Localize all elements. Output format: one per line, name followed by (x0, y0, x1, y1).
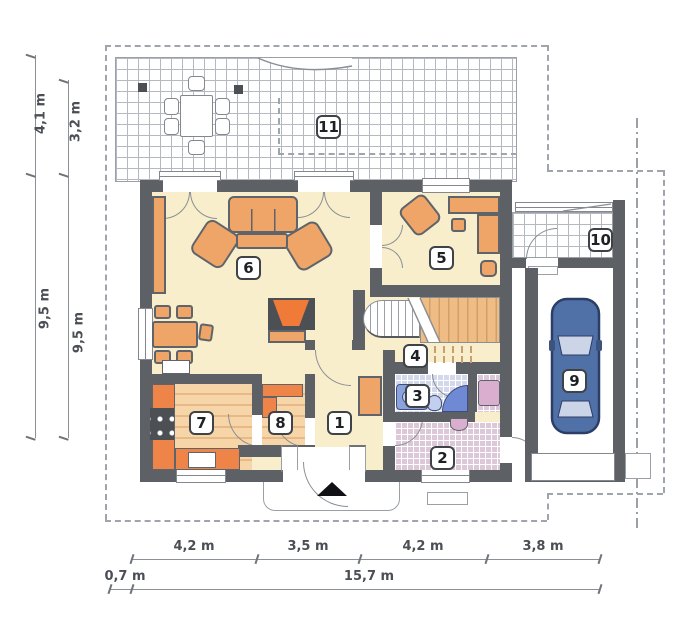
terrace-chair (215, 98, 230, 115)
garage-wall-right (613, 200, 625, 482)
room-number: 8 (275, 414, 285, 432)
study-desk (448, 196, 500, 214)
sofa (228, 196, 298, 233)
sideboard (152, 196, 166, 294)
stairs-upper-dashes (425, 356, 472, 363)
room-label-9: 9 (562, 369, 587, 393)
terrace-chair (188, 76, 205, 91)
room-number: 2 (437, 449, 447, 467)
dim-label: 15,7 m (339, 569, 399, 584)
dim-label: 0,7 m (95, 569, 155, 584)
room-label-2: 2 (430, 446, 455, 470)
room-number: 7 (196, 414, 206, 432)
vestibule-window (421, 468, 470, 483)
vestibule-stoop (427, 492, 468, 505)
wall-study-bottom (370, 285, 512, 297)
stairs-upper-flight (420, 297, 500, 343)
dim-line-bottom-total (110, 589, 600, 590)
kitchen-sink (188, 452, 216, 468)
fireplace-hearth (268, 330, 306, 343)
wall-kitchen-top (152, 374, 262, 384)
entrance-arrow-icon (317, 482, 347, 496)
terrace-chair (215, 118, 230, 135)
garage-rear-edge (515, 202, 613, 212)
study-chair (451, 218, 466, 232)
eaves-outline-left (105, 45, 107, 520)
room-number: 11 (318, 118, 339, 136)
dim-label: 3,8 m (513, 539, 573, 554)
eaves-outline-right-upper (547, 45, 549, 170)
door-opening-vestibule (383, 418, 395, 446)
study-desk (477, 214, 500, 254)
pantry-counter-top (262, 384, 303, 397)
garage-eaves-right (663, 170, 665, 493)
wall-hall-top-a (305, 340, 315, 350)
floor-plan: 11 (0, 0, 700, 619)
dining-window (138, 308, 153, 360)
roof-post (234, 85, 243, 94)
terrace-chair (164, 98, 179, 115)
door-opening-bath (428, 362, 456, 374)
dim-tick (597, 584, 602, 594)
door-opening-terrace-1 (163, 180, 217, 192)
stove (150, 408, 174, 440)
eaves-outline-top (105, 45, 547, 47)
dim-label: 3,2 m (69, 92, 84, 152)
eaves-outline-bottom (105, 520, 547, 522)
study-stool (480, 260, 497, 277)
door-jamb (349, 445, 366, 472)
terrace-table (180, 95, 213, 137)
wall-hall-top-b (352, 340, 365, 350)
room-number: 9 (569, 372, 579, 390)
room-number: 6 (243, 259, 253, 277)
dining-table (152, 321, 198, 348)
coffee-table (236, 233, 288, 249)
dim-label: 3,5 m (278, 539, 338, 554)
wall-bath-right (468, 374, 477, 412)
room-number: 3 (412, 387, 422, 405)
roof-post (138, 83, 147, 92)
room-label-4: 4 (403, 344, 428, 368)
car (549, 296, 602, 436)
room-number: 5 (436, 249, 446, 267)
room-label-3: 3 (405, 384, 430, 408)
dim-line-bottom-segments (132, 559, 600, 560)
dim-label: 4,2 m (393, 539, 453, 554)
room-label-5: 5 (429, 246, 454, 270)
door-opening-garage (500, 437, 512, 463)
upper-floor-outline-h (278, 153, 517, 155)
room-label-10: 10 (588, 228, 613, 252)
door-opening-pantry (305, 418, 315, 445)
upper-floor-outline-v (278, 98, 280, 154)
door-opening-terrace-2 (298, 180, 350, 192)
room-label-11: 11 (316, 115, 341, 139)
dining-chair (154, 305, 171, 319)
dim-label: 4,2 m (164, 539, 224, 554)
dining-chair (176, 305, 193, 319)
room-label-7: 7 (189, 411, 214, 435)
door-jamb (281, 445, 298, 472)
room-number: 1 (334, 414, 344, 432)
dim-label: 4,1 m (34, 84, 49, 144)
garage-door (531, 453, 615, 481)
study-window (422, 178, 470, 193)
dining-chair (198, 323, 214, 342)
terrace-chair (188, 140, 205, 155)
room-label-8: 8 (268, 411, 293, 435)
dim-label: 9,5 m (72, 303, 87, 363)
room-number: 10 (590, 231, 611, 249)
room-label-6: 6 (236, 256, 261, 280)
dim-label: 9,5 m (38, 279, 53, 339)
garage-stoop (625, 453, 651, 479)
display-cabinet (162, 360, 190, 374)
washing-machine (478, 380, 500, 406)
door-opening-study (370, 225, 382, 268)
stairs-lower-flight (363, 300, 420, 338)
room-number: 4 (410, 347, 420, 365)
garage-wall-left (525, 268, 538, 455)
wall-hallway-right (383, 350, 395, 470)
garage-eaves-top (547, 170, 663, 172)
dim-tick (597, 554, 602, 564)
room-label-1: 1 (327, 411, 352, 435)
small-sink (450, 418, 468, 431)
garage-eaves-connector (547, 493, 549, 520)
terrace-chair (164, 118, 179, 135)
garage-eaves-bottom (547, 493, 663, 495)
kitchen-window (176, 468, 226, 483)
hall-wardrobe (358, 376, 382, 416)
stairs-upper-dashes (425, 346, 472, 353)
